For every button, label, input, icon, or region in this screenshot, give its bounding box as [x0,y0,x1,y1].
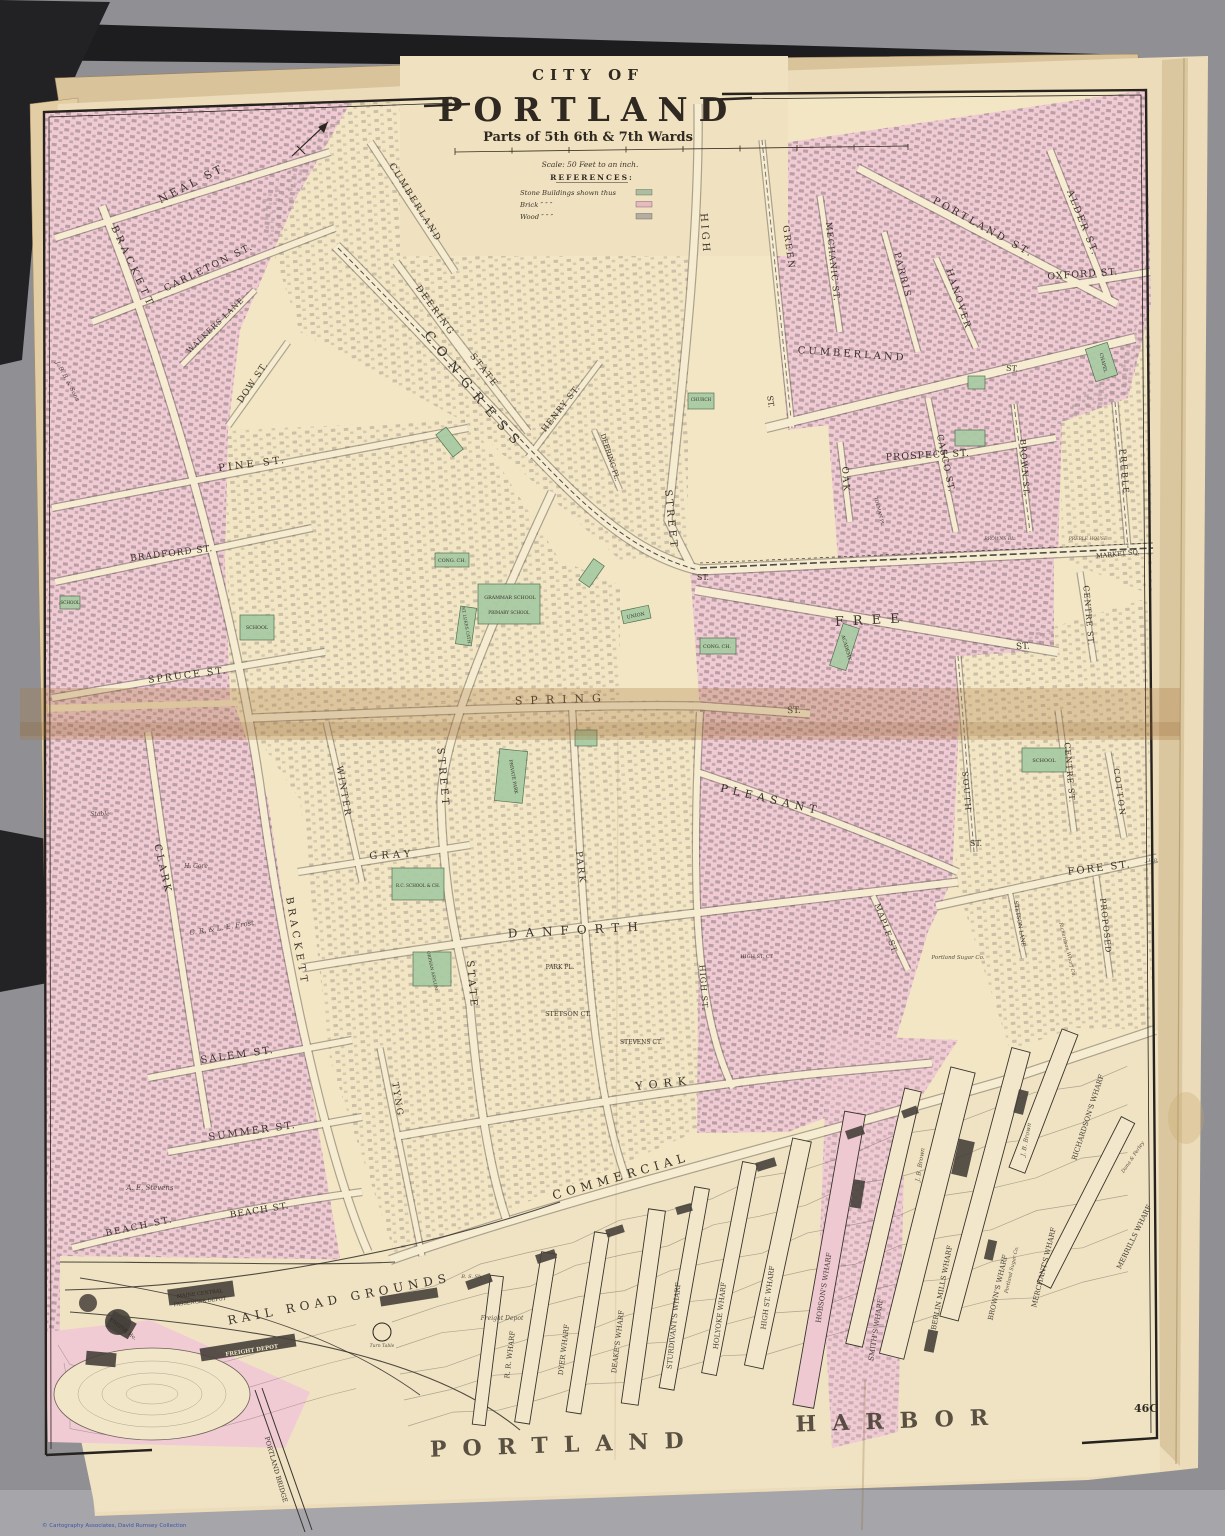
label-school: SCHOOL [1032,758,1056,764]
references-heading: REFERENCES: [550,173,634,182]
legend-row-stone: Stone Buildings shown thus [520,189,616,197]
label-st: ST. [970,839,982,848]
label-a-e-stevens: A. E. Stevens [125,1184,173,1192]
label-st: ST. [1006,364,1019,374]
legend-swatch-brick [636,202,652,208]
label-high-st-ct: HIGH ST. CT. [740,954,774,960]
label-park-pl: PARK PL. [546,964,575,971]
scale-note: Scale: 50 Feet to an inch. [542,160,639,169]
label-portland-sugar-co: Portland Sugar Co. [930,955,984,961]
label-st: ST. [697,573,709,582]
legend-row-wood: Wood ″ ″ ″ [520,213,554,221]
map-canvas: CONGRESS NEAL ST.BRACKETTCARLETON ST.WAL… [0,0,1225,1536]
label-stevens-ct: STEVENS CT. [620,1039,662,1046]
label-stable: Stable [90,811,110,818]
label-church: CHURCH [691,397,712,402]
label-school: SCHOOL [246,625,269,631]
label-cong-ch: CONG. CH. [703,644,731,650]
label-oak: OAK [839,466,851,493]
label-cong-ch: CONG. CH. [438,558,466,564]
label-stetson-ct: STETSON CT. [545,1010,591,1018]
title-panel [400,56,788,256]
label-school: SCHOOL [60,600,80,605]
legend-swatch-stone [636,190,652,196]
credit-line: © Cartography Associates, David Rumsey C… [42,1522,187,1529]
label-gray: GRAY [369,849,414,862]
label-freight-depot: Freight Depot [480,1315,524,1322]
label-st: ST. [1016,642,1030,653]
label-primary-school: PRIMARY SCHOOL [488,610,530,615]
title-city-of: CITY OF [532,66,644,84]
pond [54,1348,250,1440]
legend-swatch-wood [636,214,652,220]
legend-row-brick: Brick ″ ″ ″ [519,201,553,209]
title-subtitle: Parts of 5th 6th & 7th Wards [483,130,693,145]
label-j-h-b: J.H.B. [1145,858,1160,864]
label-turn-table: Turn Table [370,1343,395,1349]
label-grammar-school: GRAMMAR SCHOOL [484,595,536,601]
label-browns-bl: BROWNS BL. [983,536,1016,542]
label-r-c-school-ch: R.C. SCHOOL & CH. [396,883,440,888]
label-st: ST. [765,395,776,408]
title-name: PORTLAND [438,90,739,129]
label-h-gore: H. Gore [183,863,208,870]
atlas-page: CONGRESS NEAL ST.BRACKETTCARLETON ST.WAL… [0,0,1225,1536]
label-preble-house: PREBLE HOUSE [1068,536,1108,542]
label-b-s-sh: B. S. Sh. [460,1274,483,1280]
plate-number: 46C [1134,1402,1158,1415]
